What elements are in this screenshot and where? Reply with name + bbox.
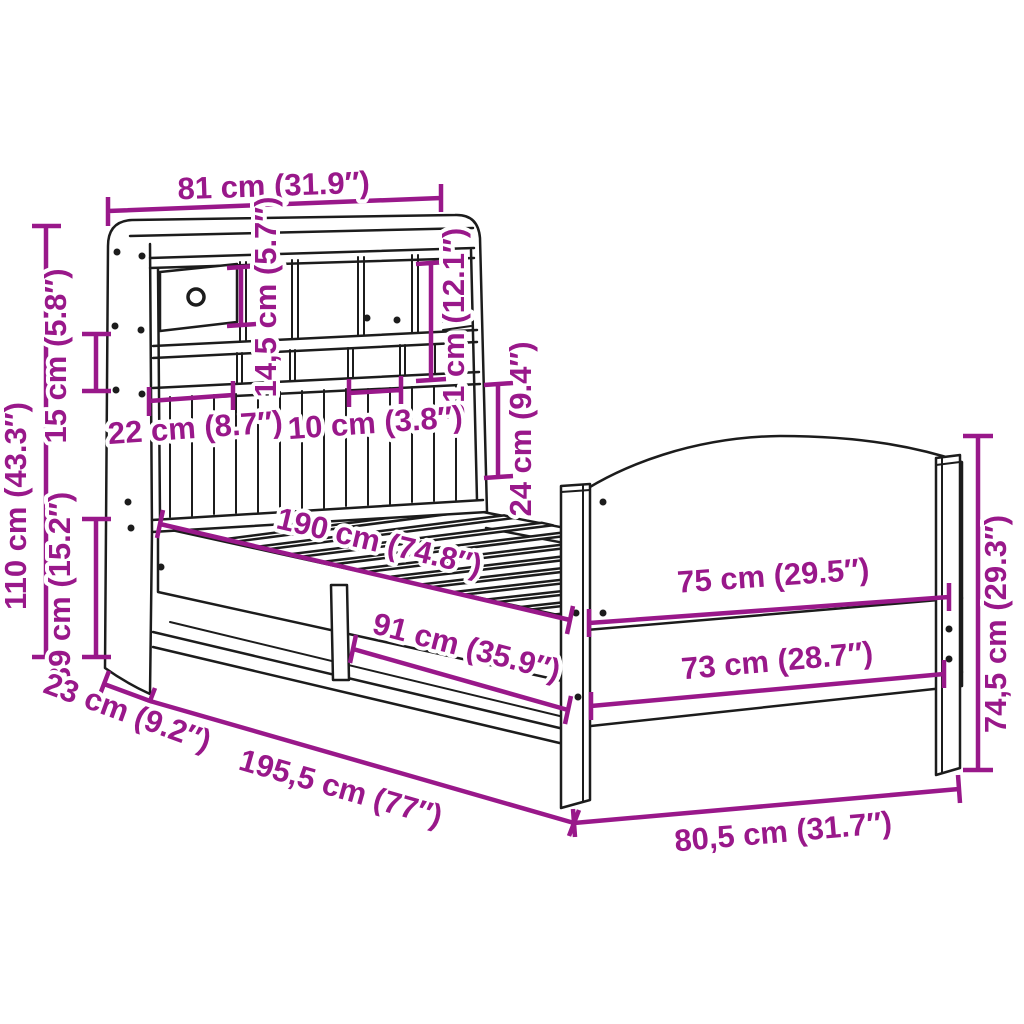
furniture-dimension-diagram: 81 cm (31.9″) 110 cm (43.3″) 15 cm (5.8″… bbox=[0, 0, 1024, 1024]
center-support-leg bbox=[331, 585, 349, 680]
diagram-canvas: 81 cm (31.9″) 110 cm (43.3″) 15 cm (5.8″… bbox=[0, 0, 1024, 1024]
headboard-drawer bbox=[160, 264, 237, 331]
footboard-right-post bbox=[936, 455, 960, 775]
dimension-label-base-height: 39 cm (15.2″) bbox=[42, 492, 77, 684]
footboard-left-post bbox=[561, 484, 590, 808]
dimension-label-shelf-gap: 15 cm (5.8″) bbox=[38, 268, 73, 443]
dimension-label-clearance-height: 24 cm (9.4″) bbox=[503, 341, 538, 516]
dimension-label-compartment-height: 14,5 cm (5.7″) bbox=[248, 197, 283, 398]
dimension-label-tall-compartment: 31 cm (12.1″) bbox=[436, 228, 471, 420]
dim-total-length bbox=[150, 701, 579, 836]
dimension-label-footboard-height: 74,5 cm (29.3″) bbox=[978, 515, 1013, 733]
dimension-label-headboard-height: 110 cm (43.3″) bbox=[0, 402, 33, 610]
